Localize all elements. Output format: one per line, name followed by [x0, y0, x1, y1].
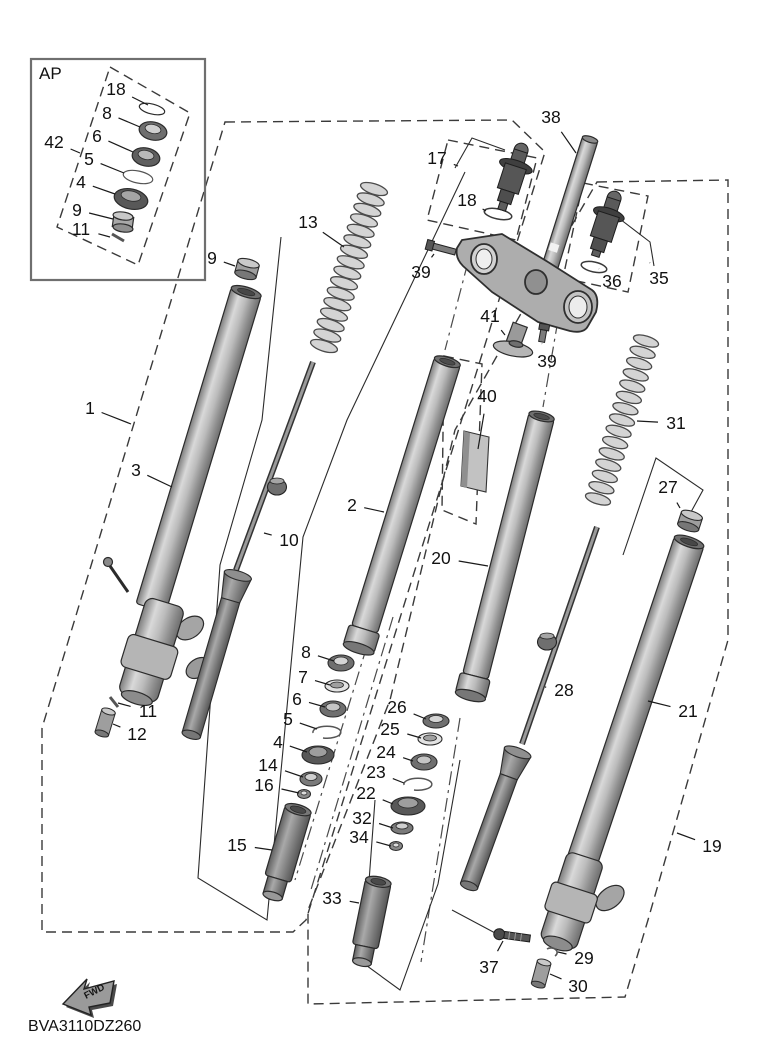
callout-p16: 16 — [254, 775, 299, 795]
callout-g19: 19 — [677, 833, 722, 856]
callout-label-p5: 5 — [283, 709, 293, 729]
callout-leader — [558, 952, 567, 954]
callout-label-p7: 7 — [298, 667, 308, 687]
callout-leader — [132, 97, 148, 105]
outer-tube-3 — [136, 283, 263, 613]
callout-leader — [498, 941, 504, 951]
callout-label-ap5: 5 — [84, 149, 94, 169]
cap-27 — [676, 508, 703, 534]
pin-11 — [110, 697, 118, 707]
ring-34 — [390, 842, 403, 851]
callout-ap6: 6 — [92, 126, 133, 152]
ap-bush-9 — [112, 211, 133, 234]
callout-leader — [118, 703, 131, 706]
reflector-40 — [461, 431, 489, 492]
callout-label-ap18: 18 — [106, 79, 125, 99]
callout-label-p28: 28 — [554, 680, 573, 700]
ap-pin-11 — [112, 234, 124, 241]
callout-label-p18b: 18 — [457, 190, 476, 210]
fork-exploded-diagram: AP — [0, 0, 768, 1063]
callout-p10: 10 — [264, 530, 299, 550]
callout-leader — [561, 132, 576, 153]
callout-p30: 30 — [550, 974, 588, 996]
washer-7 — [325, 680, 349, 692]
callout-p3: 3 — [131, 460, 172, 487]
snap-ring-23 — [404, 778, 432, 790]
callout-ap8: 8 — [102, 103, 140, 127]
callout-p41: 41 — [480, 306, 505, 335]
callout-label-p27: 27 — [658, 477, 677, 497]
callout-label-p3: 3 — [131, 460, 141, 480]
bracket-37 — [452, 910, 497, 934]
callout-p17: 17 — [427, 148, 458, 168]
callout-p4: 4 — [273, 732, 307, 752]
callout-label-p25: 25 — [380, 719, 399, 739]
callout-leader — [93, 186, 115, 194]
bracket-17 — [455, 138, 505, 168]
washer-25 — [418, 733, 442, 745]
callout-label-p16: 16 — [254, 775, 273, 795]
callout-p31: 31 — [637, 413, 686, 433]
callout-p33: 33 — [322, 888, 359, 908]
callout-p20: 20 — [431, 548, 488, 568]
callout-ap18: 18 — [106, 79, 148, 105]
parts-diagram-page: AP — [0, 0, 768, 1063]
fork-cap-17 — [485, 138, 539, 215]
callout-label-p9: 9 — [207, 248, 217, 268]
callout-label-ap6: 6 — [92, 126, 102, 146]
callout-leader — [501, 330, 505, 335]
callout-ap11: 11 — [72, 219, 110, 239]
callout-p36: 36 — [599, 269, 622, 291]
callout-label-p36: 36 — [602, 271, 621, 291]
fwd-arrow: FWD — [63, 979, 117, 1018]
callout-p22: 22 — [356, 783, 393, 804]
callout-label-p31: 31 — [666, 413, 685, 433]
washer-29 — [547, 948, 557, 956]
callout-label-p12: 12 — [127, 724, 146, 744]
callout-leader — [98, 234, 110, 237]
callout-leader — [113, 724, 120, 727]
callout-label-p11: 11 — [139, 701, 157, 721]
pinch-bolt-39-upper — [425, 240, 457, 257]
callout-leader — [376, 842, 391, 846]
oil-seal-4 — [302, 746, 334, 764]
callout-p15: 15 — [227, 835, 272, 855]
clamp-stem-boss — [525, 270, 547, 294]
triple-clamp — [457, 234, 598, 332]
callout-p18b: 18 — [457, 190, 486, 211]
pinch-bolt-39-lower — [537, 323, 550, 342]
callout-label-p24: 24 — [376, 742, 396, 762]
callout-label-p34: 34 — [349, 827, 369, 847]
callout-label-p26: 26 — [387, 697, 406, 717]
callout-leader — [264, 533, 272, 535]
callout-p7: 7 — [298, 667, 330, 687]
ring-32 — [391, 822, 413, 834]
ap-snap-ring-5 — [122, 168, 154, 186]
callout-p8: 8 — [301, 642, 334, 662]
callout-p12: 12 — [113, 724, 147, 744]
callout-g1: 1 — [85, 398, 131, 424]
callout-label-p38: 38 — [541, 107, 560, 127]
callout-leader — [677, 833, 695, 840]
callout-p24: 24 — [376, 742, 413, 762]
inner-tube-2 — [342, 353, 464, 658]
callout-label-p4: 4 — [273, 732, 283, 752]
callout-label-ap42: 42 — [44, 132, 63, 152]
callout-leader — [224, 262, 235, 266]
oil-seal-22 — [391, 797, 425, 815]
callout-label-p20: 20 — [431, 548, 451, 568]
callout-leader — [459, 561, 488, 566]
callout-leader — [71, 149, 80, 153]
ap-ring-8 — [137, 119, 168, 142]
callout-label-p30: 30 — [568, 976, 588, 996]
callout-label-p32: 32 — [352, 808, 371, 828]
callout-label-p35: 35 — [649, 268, 668, 288]
callout-leader — [414, 714, 426, 719]
callout-label-p29: 29 — [574, 948, 593, 968]
callout-p26: 26 — [387, 697, 426, 719]
callout-leader — [147, 475, 172, 487]
slider-33 — [348, 874, 392, 968]
bolt-30 — [531, 958, 552, 990]
callout-leader — [101, 164, 124, 173]
right-cartridge-bracket — [363, 760, 460, 990]
ap-oring-18 — [138, 101, 166, 117]
slider-15 — [259, 801, 313, 904]
callout-leader — [102, 413, 131, 425]
callout-label-ap9: 9 — [72, 200, 82, 220]
axis-clamp-left — [445, 262, 468, 350]
callout-leader — [393, 779, 404, 783]
callout-label-p14: 14 — [258, 755, 278, 775]
callout-leader — [285, 771, 303, 777]
callout-label-p21: 21 — [678, 701, 697, 721]
ap-seal-4 — [112, 186, 149, 213]
cap-9 — [234, 256, 260, 281]
callout-leader — [108, 141, 133, 152]
spring-13 — [309, 180, 389, 355]
callout-label-p39a: 39 — [411, 262, 430, 282]
callout-p38: 38 — [541, 107, 576, 153]
callout-leader — [637, 421, 658, 422]
callout-p28: 28 — [545, 680, 574, 700]
ring-6 — [320, 701, 346, 717]
callout-p21: 21 — [648, 701, 698, 721]
callout-label-p41: 41 — [480, 306, 499, 326]
callout-leader — [255, 848, 272, 851]
ap-ring-6 — [130, 145, 161, 168]
callout-label-ap4: 4 — [76, 172, 86, 192]
callout-label-p8: 8 — [301, 642, 311, 662]
diagram-code: BVA3110DZ260 — [28, 1018, 141, 1035]
snap-ring-5 — [313, 726, 341, 738]
ring-8 — [328, 655, 354, 671]
callout-label-ap8: 8 — [102, 103, 112, 123]
callout-label-ap11: 11 — [72, 219, 90, 239]
callout-leader — [677, 503, 680, 508]
callout-label-p33: 33 — [322, 888, 341, 908]
callout-label-p15: 15 — [227, 835, 246, 855]
callout-label-p22: 22 — [356, 783, 375, 803]
bushing-41 — [492, 322, 534, 360]
callout-leader — [364, 508, 384, 512]
callout-leader — [300, 723, 317, 729]
callout-leader — [89, 213, 113, 219]
bolt-12 — [94, 707, 116, 739]
ring-26 — [423, 714, 449, 728]
brake-lever-stub — [110, 566, 128, 592]
callout-p39a: 39 — [411, 254, 434, 282]
callout-p5: 5 — [283, 709, 317, 729]
callout-label-p23: 23 — [366, 762, 385, 782]
callout-p37: 37 — [479, 941, 503, 977]
callout-label-p40: 40 — [477, 386, 497, 406]
ring-14 — [300, 772, 322, 786]
damper-10-body — [177, 567, 253, 742]
callout-leader — [290, 746, 307, 752]
callout-p6: 6 — [292, 689, 325, 709]
callout-p2: 2 — [347, 495, 384, 515]
ap-box-label: AP — [39, 64, 62, 83]
callout-leader — [350, 901, 359, 903]
callout-leader — [323, 232, 344, 247]
callout-ap5: 5 — [84, 149, 124, 173]
callout-ap4: 4 — [76, 172, 115, 194]
callout-p13: 13 — [298, 212, 344, 247]
callout-leader — [550, 974, 562, 979]
callout-leader — [282, 789, 300, 793]
callout-label-g1: 1 — [85, 398, 95, 418]
callout-p23: 23 — [366, 762, 404, 783]
damper-28-body — [455, 743, 533, 894]
callout-leader — [119, 118, 141, 127]
callout-label-p13: 13 — [298, 212, 317, 232]
callout-p9: 9 — [207, 248, 235, 268]
callout-p35: 35 — [649, 263, 668, 288]
callout-label-p2: 2 — [347, 495, 357, 515]
right-axle-bracket — [533, 849, 629, 956]
callout-label-p39b: 39 — [537, 351, 556, 371]
callout-ap42: 42 — [44, 132, 80, 153]
callout-label-p37: 37 — [479, 957, 498, 977]
callout-p25: 25 — [380, 719, 421, 739]
callout-leader — [383, 800, 393, 804]
callout-ap9: 9 — [72, 200, 113, 220]
ring-24 — [411, 754, 437, 770]
ring-16 — [298, 790, 311, 799]
callout-leader — [432, 254, 435, 257]
callout-p27: 27 — [658, 477, 680, 508]
callout-label-g19: 19 — [702, 836, 721, 856]
bolt-37 — [493, 928, 531, 944]
callout-label-p17: 17 — [427, 148, 446, 168]
callout-label-p10: 10 — [279, 530, 299, 550]
callout-label-p6: 6 — [292, 689, 302, 709]
callout-leader — [379, 824, 393, 829]
callout-p34: 34 — [349, 827, 391, 847]
